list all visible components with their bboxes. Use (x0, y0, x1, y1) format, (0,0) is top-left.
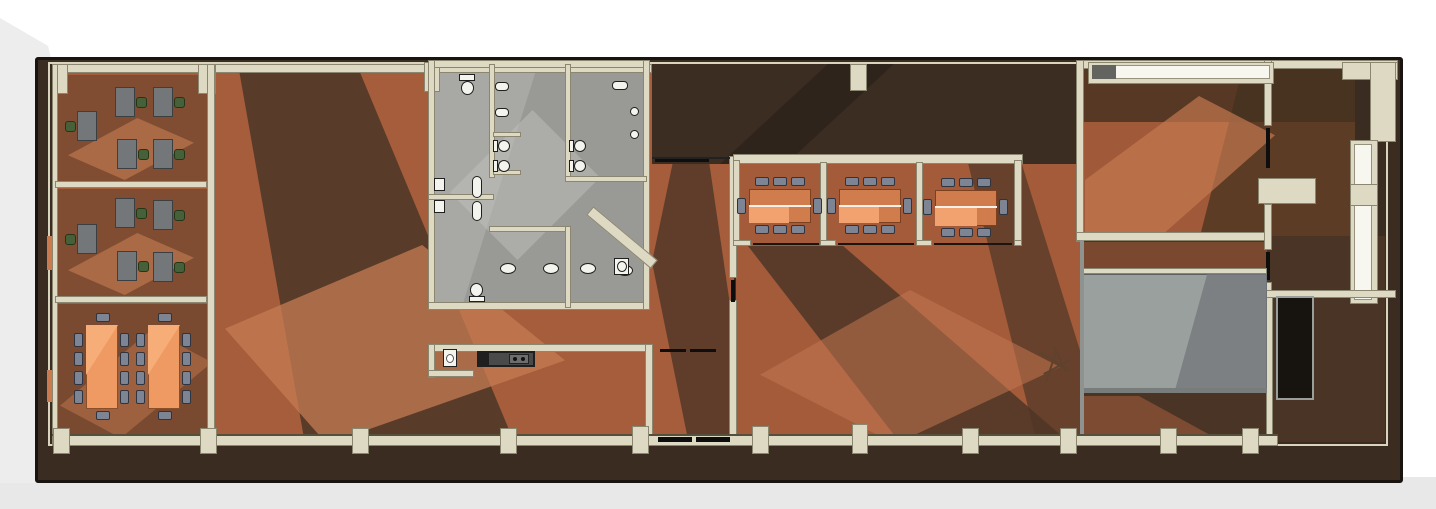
mtg-chair (845, 177, 859, 186)
bottom-column-9 (1060, 428, 1077, 454)
bottom-column-10 (1160, 428, 1177, 454)
mtg-chair (74, 390, 83, 404)
mtg-chair (120, 352, 129, 366)
wall-sink (434, 200, 445, 213)
mtg-chair (977, 228, 991, 237)
bottom-column-4 (500, 428, 517, 454)
conference-table-3-line (935, 206, 997, 208)
urinal (612, 81, 628, 90)
meetingrooms-stub-2 (820, 240, 836, 246)
corner-wall-L2 (1370, 62, 1396, 142)
corridor-door-right (731, 280, 735, 302)
tall-urinal (472, 176, 482, 198)
mtg-chair (959, 178, 973, 187)
sink (543, 263, 559, 274)
entrance-door-leaf-1 (658, 437, 692, 442)
mtg-chair (136, 333, 145, 347)
entrance-door-leaf-2 (696, 437, 730, 442)
mtg-chair (941, 178, 955, 187)
kitchen-basin-inner (446, 354, 454, 363)
wall-sink (434, 178, 445, 191)
office-chair (65, 121, 76, 132)
elevator-shaft (1276, 296, 1314, 400)
bottom-column-6 (752, 426, 769, 454)
floor-plan-canvas (0, 0, 1436, 509)
desk (153, 252, 173, 282)
office-chair (174, 210, 185, 221)
meetingrooms-glass-1 (753, 243, 819, 245)
corridor-wall-lower (729, 300, 737, 444)
restroom-div-right (565, 176, 647, 182)
mtg-chair (182, 371, 191, 385)
urinal (495, 82, 509, 91)
restroom-div-mid (489, 226, 571, 232)
left-window-2 (47, 370, 52, 402)
conference-table-3-low (935, 208, 977, 226)
office-chair (65, 234, 76, 245)
mtg-chair (96, 411, 110, 420)
mtg-chair (773, 177, 787, 186)
bottom-column-1 (53, 428, 70, 454)
mtg-chair (120, 371, 129, 385)
desk (153, 139, 173, 169)
desk (115, 198, 135, 228)
meetingrooms-glass-3 (934, 243, 1012, 245)
bottom-column-3 (352, 428, 369, 454)
kitchen-sink (509, 354, 529, 364)
mtg-chair (74, 371, 83, 385)
mtg-chair (999, 199, 1008, 215)
meetingrooms-wall-top (733, 154, 1023, 164)
mtg-chair (923, 199, 932, 215)
restroom-wall-v3 (565, 226, 571, 308)
corridor-door-kitchen-2 (690, 349, 716, 352)
office-chair (174, 149, 185, 160)
mtg-chair (845, 225, 859, 234)
bottom-column-11 (1242, 428, 1259, 454)
restroom-wall-top (428, 60, 650, 68)
mtg-chair (863, 225, 877, 234)
mtg-chair (881, 177, 895, 186)
toilet-bowl (498, 160, 510, 172)
mtg-chair (182, 333, 191, 347)
toilet-tank (469, 296, 485, 302)
mtg-chair (158, 411, 172, 420)
mtg-chair (773, 225, 787, 234)
conference-table-2-low (839, 206, 879, 223)
mtg-chair (120, 390, 129, 404)
office-divider-1 (55, 181, 207, 188)
office-chair (174, 262, 185, 273)
left-window-1 (47, 236, 52, 270)
toilet-bowl (461, 81, 474, 95)
office-chair (174, 97, 185, 108)
north-window-panel (1092, 65, 1116, 79)
conference-table-1-line (749, 205, 811, 207)
sink (500, 263, 516, 274)
bottom-column-8 (962, 428, 979, 454)
mtg-chair (96, 313, 110, 322)
conference-table-1-low (749, 206, 789, 223)
mtg-chair (182, 352, 191, 366)
sink (580, 263, 596, 274)
stall-partition-1 (493, 132, 521, 137)
mtg-chair (755, 225, 769, 234)
toilet-bowl (574, 160, 586, 172)
restroom-wall-right (643, 60, 650, 310)
mtg-chair (791, 177, 805, 186)
meetingrooms-divider-2 (916, 162, 923, 246)
office-divider-2 (55, 296, 207, 303)
left-inner-wall (52, 64, 58, 444)
bottom-wall-line (52, 434, 1278, 436)
corridor-door-top (655, 159, 709, 162)
mtg-chair (903, 198, 912, 214)
mtg-chair (158, 313, 172, 322)
desk (117, 139, 137, 169)
meetingrooms-stub-3 (916, 240, 932, 246)
bottom-column-7 (852, 424, 868, 454)
corridor-door-kitchen-1 (660, 349, 686, 352)
toilet-bowl (498, 140, 510, 152)
wall-basin (630, 130, 639, 139)
office-chair (136, 208, 147, 219)
wall-basin (630, 107, 639, 116)
toilet-tank (459, 74, 475, 81)
mtg-chair (813, 198, 822, 214)
desk (117, 251, 137, 281)
office-chair (136, 97, 147, 108)
mtg-chair (941, 228, 955, 237)
mtg-chair (120, 333, 129, 347)
mtg-chair (136, 352, 145, 366)
mid-column (850, 64, 867, 91)
kitchen-wall-top (428, 344, 652, 352)
east-window-block (1350, 184, 1378, 206)
kitchen-wall-hook (428, 370, 474, 377)
desk (115, 87, 135, 117)
toilet-bowl (574, 140, 586, 152)
urinal (495, 108, 509, 117)
mtg-chair (959, 228, 973, 237)
office-chair (138, 149, 149, 160)
toilet-bowl (470, 283, 483, 297)
office-chair (138, 261, 149, 272)
accessible-wc-bowl (617, 261, 627, 272)
rightwing-wall-mid (1076, 232, 1272, 241)
kitchen-faucet (513, 357, 517, 361)
mtg-chair (827, 198, 836, 214)
meetingrooms-wall-right (1014, 160, 1022, 246)
mtg-chair (74, 352, 83, 366)
mtg-chair (136, 371, 145, 385)
mtg-chair (791, 225, 805, 234)
rightwing-door-upper (1266, 128, 1270, 168)
desk (77, 224, 97, 254)
rightwing-wall-right-mid (1264, 204, 1272, 250)
stair-stringer (1083, 388, 1267, 393)
rightwing-wall-left (1076, 60, 1084, 242)
restroom-wall-bottom (428, 302, 650, 310)
desk (153, 87, 173, 117)
mtg-chair (863, 177, 877, 186)
kitchen-faucet (521, 357, 525, 361)
east-window-panes (1354, 144, 1372, 300)
mtg-chair (136, 390, 145, 404)
desk (77, 111, 97, 141)
tall-urinal (472, 201, 482, 221)
mtg-chair (881, 225, 895, 234)
bottom-column-2 (200, 428, 217, 454)
mtg-chair (182, 390, 191, 404)
desk (153, 200, 173, 230)
meetingrooms-glass-2 (838, 243, 914, 245)
stair-rail-left (1080, 240, 1084, 440)
bottom-column-5 (632, 426, 649, 454)
mtg-chair (755, 177, 769, 186)
leftwing-main-wall (207, 64, 215, 444)
mtg-chair (737, 198, 746, 214)
north-window-panes (1092, 65, 1270, 79)
meetingrooms-stub-4 (1014, 240, 1022, 246)
rightwing-closet (1258, 178, 1316, 204)
mtg-chair (74, 333, 83, 347)
bottom-window-ticks (58, 445, 1270, 452)
meetingrooms-stub-1 (733, 240, 751, 246)
conference-table-2-line (839, 205, 901, 207)
mtg-chair (977, 178, 991, 187)
bottomright-wall-v (1266, 290, 1273, 442)
